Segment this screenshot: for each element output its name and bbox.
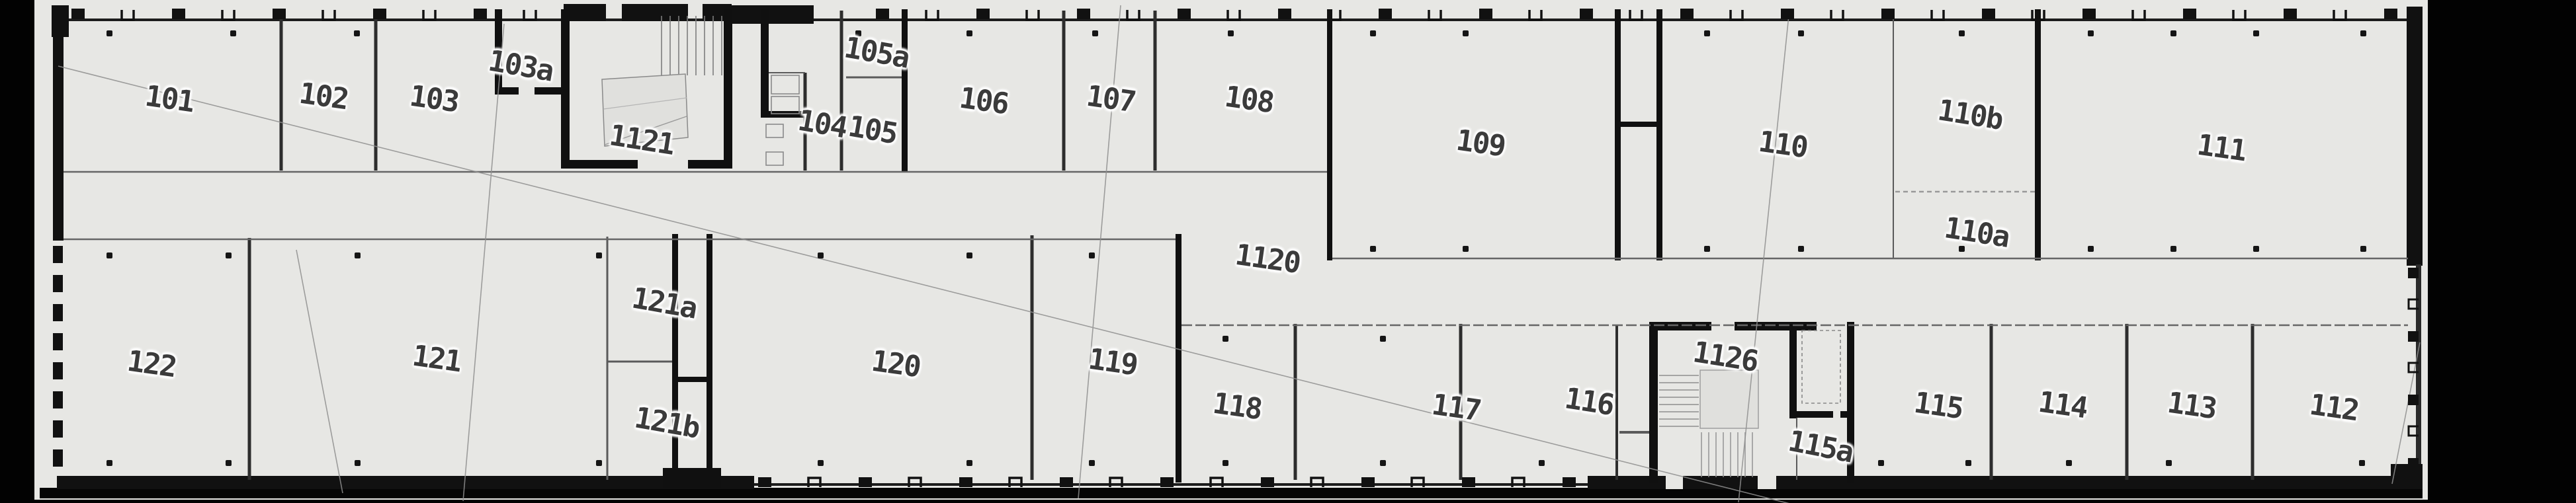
- room-label-103: 103: [408, 79, 460, 120]
- room-label-109: 109: [1454, 124, 1507, 164]
- room-label-1121: 1121: [607, 118, 677, 162]
- room-label-122: 122: [125, 344, 178, 385]
- room-label-121a: 121a: [629, 281, 699, 325]
- room-label-1120: 1120: [1233, 238, 1302, 280]
- room-label-102: 102: [297, 77, 350, 117]
- room-label-120: 120: [869, 344, 922, 385]
- room-label-121: 121: [410, 339, 463, 379]
- room-label-115a: 115a: [1785, 424, 1856, 470]
- room-label-112: 112: [2307, 388, 2360, 428]
- room-label-115: 115: [1912, 386, 1965, 426]
- room-labels: 101102103103a1121104105105a1061071081091…: [0, 0, 2576, 503]
- room-label-114: 114: [2036, 385, 2089, 426]
- room-label-113: 113: [2165, 386, 2218, 426]
- room-label-110: 110: [1756, 125, 1809, 165]
- room-label-121b: 121b: [632, 401, 701, 445]
- room-label-105a: 105a: [841, 30, 911, 75]
- floor-plan: 101102103103a1121104105105a1061071081091…: [0, 0, 2576, 503]
- room-label-107: 107: [1084, 79, 1137, 120]
- room-label-117: 117: [1430, 388, 1482, 428]
- room-label-105: 105: [845, 110, 899, 151]
- room-label-111: 111: [2195, 128, 2248, 169]
- room-label-119: 119: [1086, 342, 1139, 383]
- room-label-106: 106: [957, 81, 1010, 122]
- room-label-1126: 1126: [1691, 335, 1760, 379]
- room-label-101: 101: [143, 79, 196, 120]
- room-label-116: 116: [1563, 381, 1616, 422]
- room-label-104: 104: [795, 104, 849, 145]
- room-label-108: 108: [1223, 80, 1275, 120]
- room-label-110a: 110a: [1942, 211, 2012, 254]
- room-label-110b: 110b: [1936, 93, 2005, 137]
- room-label-103a: 103a: [486, 44, 555, 88]
- room-label-118: 118: [1211, 387, 1264, 427]
